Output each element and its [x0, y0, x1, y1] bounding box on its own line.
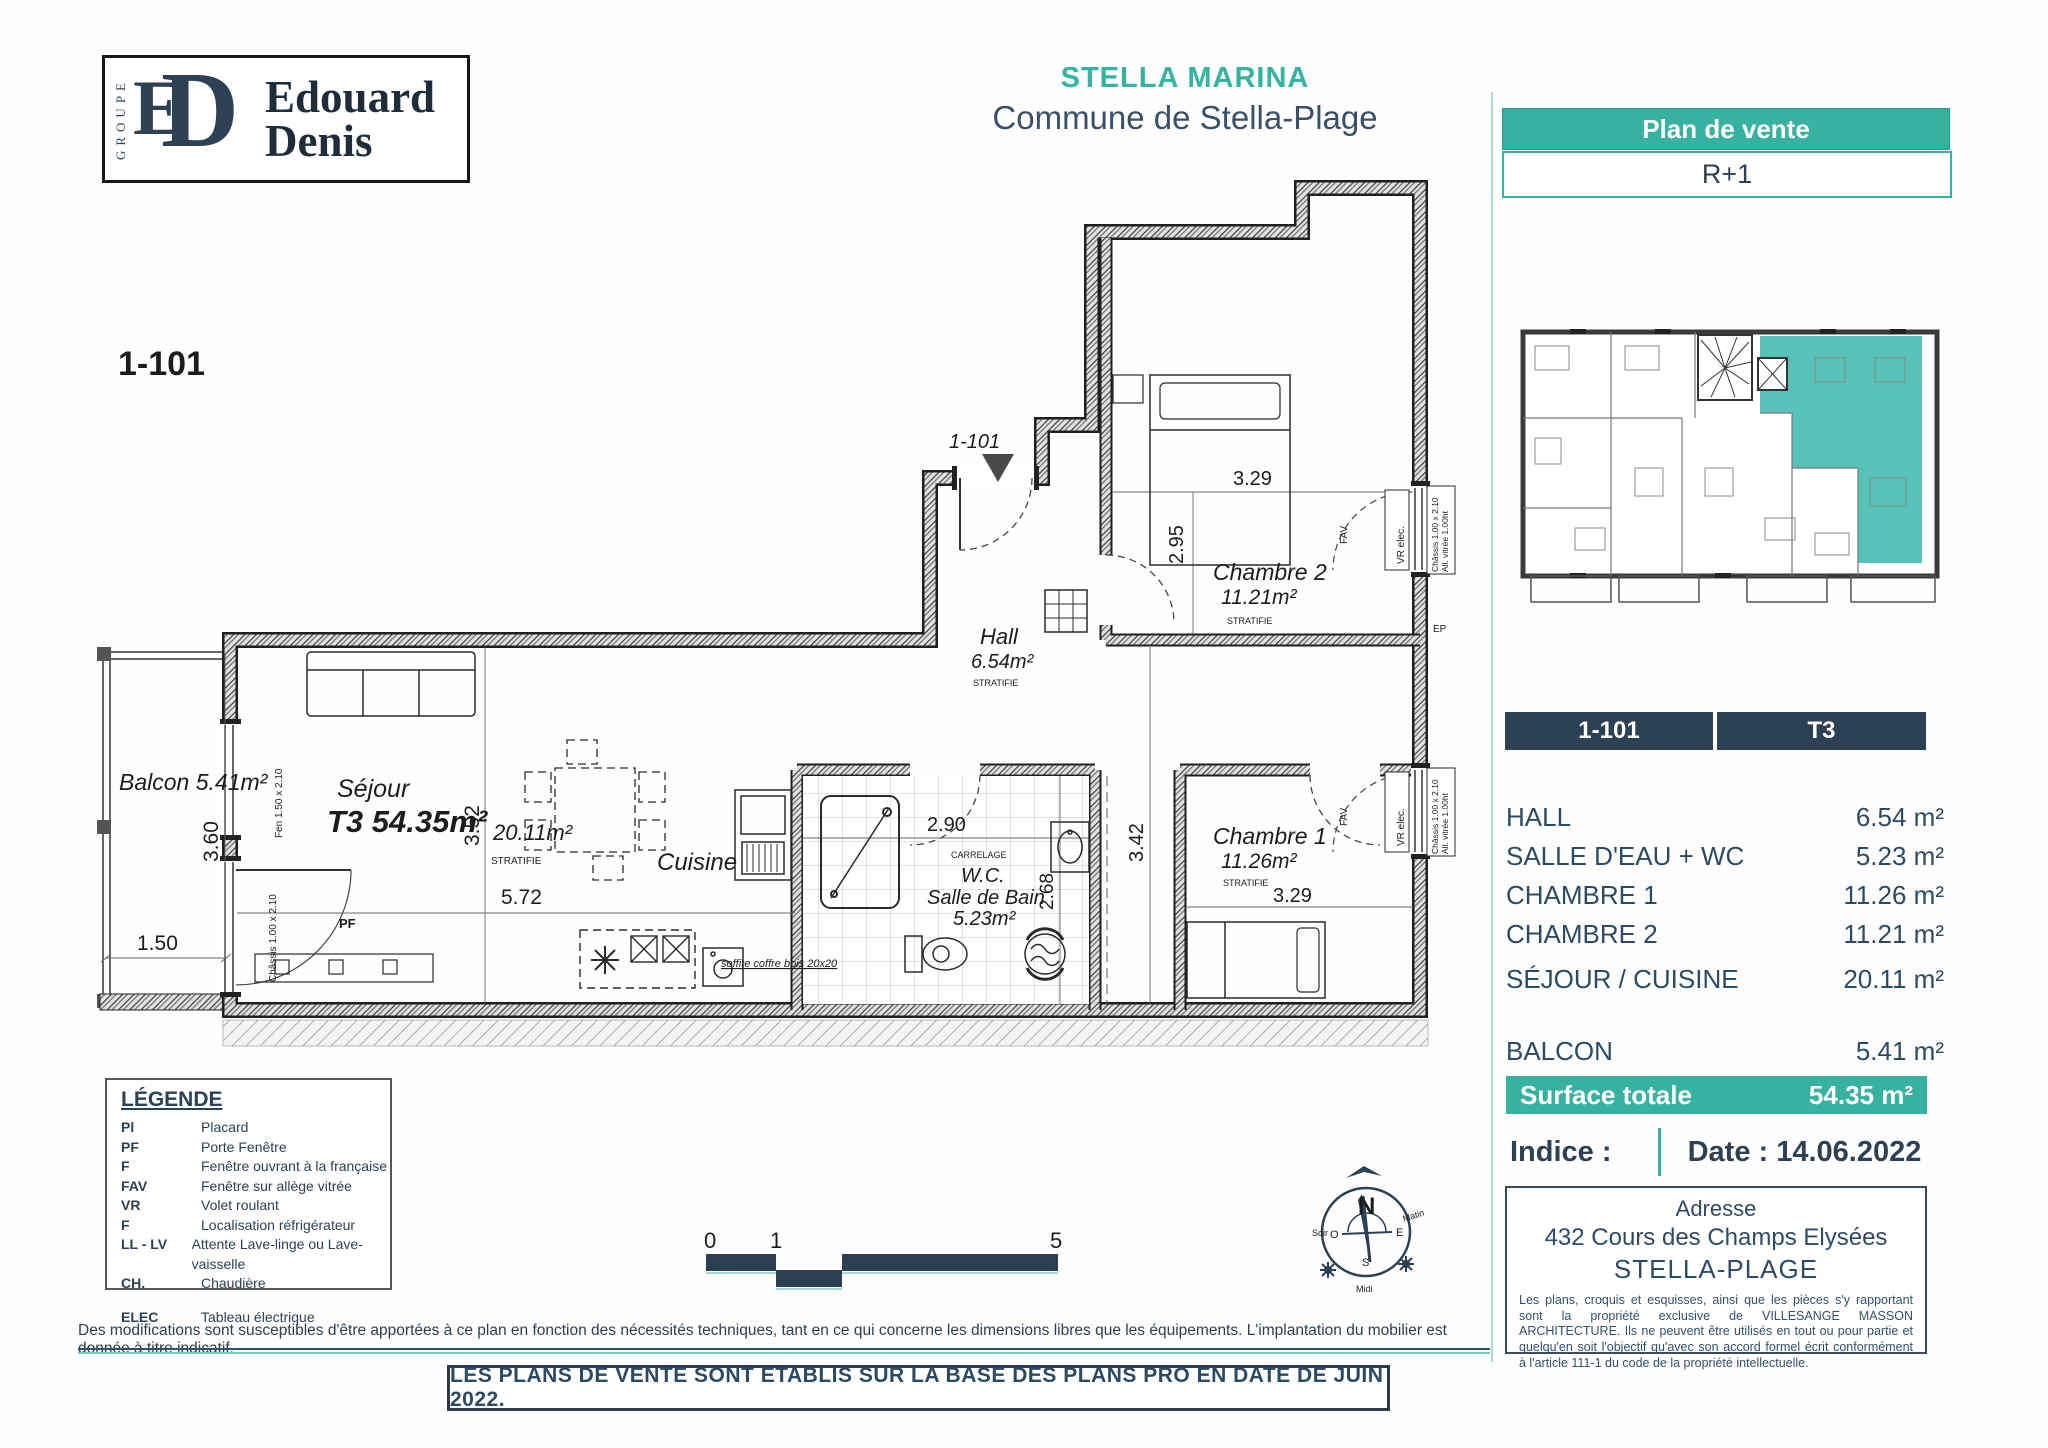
dim-572: 5.72 [501, 886, 542, 909]
address-line1: 432 Cours des Champs Elysées [1507, 1224, 1925, 1252]
fav-label: FAV [1339, 808, 1350, 826]
table-row: CHAMBRE 2 11.21 m² [1502, 915, 1948, 954]
room-label: CHAMBRE 1 [1502, 880, 1658, 911]
legend-label: Porte Fenêtre [201, 1138, 287, 1158]
legend-item: FLocalisation réfrigérateur [121, 1216, 390, 1236]
compass-midi: Midi [1356, 1284, 1373, 1294]
kitchen-column [735, 790, 791, 880]
floor-plan: 1-101 1-101 Balcon 5.41m² 3.60 1.50 Fen … [75, 170, 1495, 1070]
brand-name-line2: Denis [265, 119, 435, 163]
sdb-label: Salle de Bain [927, 887, 1045, 909]
chambre2-area-label: 11.21m² [1221, 586, 1297, 609]
room-label: CHAMBRE 2 [1502, 919, 1658, 950]
dining-table [525, 740, 665, 880]
dim-352: 3.52 [461, 805, 484, 846]
chassis-label: Châssis 1.00 x 2.10 [1430, 497, 1440, 572]
legend-title: LÉGENDE [121, 1088, 390, 1112]
surface-totale-bar: Surface totale 54.35 m² [1506, 1076, 1927, 1114]
legend-abbr: F [121, 1216, 201, 1236]
legend-abbr: F [121, 1157, 201, 1177]
allege-label: All. vitrée 1.00ht [1440, 510, 1450, 572]
room-area: 11.21 m² [1843, 919, 1948, 950]
legend-label: Localisation réfrigérateur [201, 1216, 355, 1236]
legend-label: Chaudière [201, 1274, 266, 1294]
dim-342: 3.42 [1126, 823, 1148, 862]
fen-label: Fen 1.50 x 2.10 [274, 768, 285, 838]
balcon-label: BALCON [1502, 1036, 1613, 1067]
sejour-area-label: 20.11m² [492, 820, 573, 845]
table-row: HALL 6.54 m² [1502, 798, 1948, 837]
table-row: SÉJOUR / CUISINE 20.11 m² [1502, 960, 1948, 999]
surface-totale-label: Surface totale [1520, 1080, 1692, 1111]
dim-268: 2.68 [1037, 873, 1058, 910]
unit-tag: 1-101 [118, 345, 205, 383]
legend-abbr: VR [121, 1196, 201, 1216]
legend-item: FFenêtre ouvrant à la française [121, 1157, 390, 1177]
project-title: STELLA MARINA Commune de Stella-Plage [985, 62, 1385, 137]
compass-n: N [1358, 1193, 1375, 1220]
chassis-left-label: Châssis 1.00 x 2.10 [268, 894, 279, 982]
monogram-d: D [161, 57, 239, 165]
unit-type-badge: T3 [1717, 712, 1926, 750]
legend-box: LÉGENDE PlPlacard PFPorte Fenêtre FFenêt… [105, 1078, 392, 1290]
sideboard [255, 954, 433, 982]
hall-label: Hall [980, 624, 1019, 649]
copyright-mention: Les plans, croquis et esquisses, ainsi q… [1507, 1285, 1925, 1371]
indice-label: Indice : [1502, 1136, 1658, 1169]
legend-label: Fenêtre sur allège vitrée [201, 1177, 352, 1197]
brand-monogram: E D [131, 61, 261, 177]
wc-label: W.C. [961, 865, 1005, 887]
allege-label: All. vitrée 1.00ht [1440, 792, 1450, 854]
floor-plan-svg: 1-101 1-101 Balcon 5.41m² 3.60 1.50 Fen … [75, 170, 1495, 1070]
unit-number-badge: 1-101 [1505, 712, 1713, 750]
address-line2: STELLA-PLAGE [1507, 1254, 1925, 1285]
sejour-label: Séjour [337, 775, 411, 803]
plan-de-vente-banner: Plan de vente [1502, 108, 1950, 150]
legend-item: FAVFenêtre sur allège vitrée [121, 1177, 390, 1197]
cuisine-label: Cuisine [657, 849, 737, 876]
legend-abbr: PF [121, 1138, 201, 1158]
ep-label: EP [1433, 624, 1447, 635]
plan-de-vente-sheet: { "brand": {"groupe":"GROUPE","monogram_… [0, 0, 2048, 1448]
room-area: 11.26 m² [1843, 880, 1948, 911]
room-label: SALLE D'EAU + WC [1502, 841, 1744, 872]
carrelage-label: CARRELAGE [951, 850, 1007, 860]
elec-cabinet-icon [1045, 590, 1087, 632]
compass-rose: N O E S Soir Matin Midi [1312, 1160, 1424, 1310]
hotplate-icon [591, 946, 619, 974]
chambre1-area-label: 11.26m² [1221, 850, 1297, 873]
address-title: Adresse [1507, 1196, 1925, 1222]
stratifie-label: STRATIFIE [1227, 616, 1272, 626]
vr-label: VR elec. [1396, 526, 1407, 564]
legend-abbr: CH. [121, 1274, 201, 1294]
plan-labels: 1-101 1-101 Balcon 5.41m² 3.60 1.50 Fen … [118, 345, 1450, 982]
balcon-area: 5.41 m² [1856, 1036, 1948, 1067]
indice-date-row: Indice : Date : 14.06.2022 [1502, 1128, 1948, 1176]
footer-rule-teal [78, 1352, 1490, 1354]
entrance-label: 1-101 [949, 431, 1000, 453]
dim-360: 3.60 [200, 821, 223, 862]
soffite-label: soffite coffre bois 20x20 [721, 958, 838, 970]
compass-e: E [1396, 1227, 1403, 1239]
legend-label: Placard [201, 1118, 248, 1138]
legend-label: Volet roulant [201, 1196, 279, 1216]
hall-area-label: 6.54m² [971, 651, 1035, 673]
legend-item: CH.Chaudière [121, 1274, 390, 1294]
brand-logo: GROUPE E D Edouard Denis [102, 55, 470, 183]
level-badge: R+1 [1502, 151, 1952, 198]
legend-item: PlPlacard [121, 1118, 390, 1138]
footer-notice-box: LES PLANS DE VENTE SONT ETABLIS SUR LA B… [447, 1365, 1390, 1411]
compass-s: S [1362, 1257, 1369, 1269]
chassis-label: Châssis 1.00 x 2.10 [1430, 779, 1440, 854]
dim-329b: 3.29 [1273, 885, 1312, 907]
room-area: 6.54 m² [1856, 802, 1948, 833]
stratifie-label: STRATIFIE [973, 678, 1018, 688]
compass-o: O [1330, 1229, 1339, 1241]
balcon-row: BALCON 5.41 m² [1502, 1032, 1948, 1071]
project-name: STELLA MARINA [985, 62, 1385, 95]
brand-name-line1: Edouard [265, 75, 435, 119]
footer-rule-navy [78, 1348, 1490, 1350]
scale-1: 1 [770, 1232, 782, 1253]
address-box: Adresse 432 Cours des Champs Elysées STE… [1505, 1186, 1927, 1354]
kitchen-counter [580, 930, 695, 988]
chambre1-label: Chambre 1 [1213, 823, 1327, 849]
key-plan-thumbnail [1515, 318, 1945, 616]
chambre2-label: Chambre 2 [1213, 559, 1327, 585]
key-plan-svg [1515, 318, 1945, 616]
project-commune: Commune de Stella-Plage [985, 99, 1385, 137]
pf-label: PF [339, 916, 356, 931]
room-areas-table: HALL 6.54 m² SALLE D'EAU + WC 5.23 m² CH… [1502, 798, 1948, 999]
legend-abbr: LL - LV [121, 1235, 192, 1274]
room-area: 5.23 m² [1856, 841, 1948, 872]
brand-name: Edouard Denis [265, 75, 435, 163]
room-area: 20.11 m² [1843, 964, 1948, 995]
legend-label: Fenêtre ouvrant à la française [201, 1157, 387, 1177]
compass-soir: Soir [1312, 1228, 1328, 1238]
bed-chambre1 [1187, 922, 1325, 998]
sofa [307, 652, 475, 716]
stratifie-label: STRATIFIE [1223, 878, 1268, 888]
dim-329a: 3.29 [1233, 468, 1272, 490]
legend-abbr: FAV [121, 1177, 201, 1197]
table-row: SALLE D'EAU + WC 5.23 m² [1502, 837, 1948, 876]
table-row: CHAMBRE 1 11.26 m² [1502, 876, 1948, 915]
stratifie-label: STRATIFIE [491, 856, 542, 867]
legend-item: LL - LVAttente Lave-linge ou Lave-vaisse… [121, 1235, 390, 1274]
scale-bar: 0 1 5 [700, 1232, 1072, 1302]
dim-295: 2.95 [1166, 525, 1188, 564]
legend-label: Attente Lave-linge ou Lave-vaisselle [192, 1235, 390, 1274]
lower-wall-band [223, 1020, 1428, 1046]
fav-label: FAV [1339, 526, 1350, 544]
surface-totale-value: 54.35 m² [1809, 1080, 1913, 1111]
legend-item: VRVolet roulant [121, 1196, 390, 1216]
room-label: HALL [1502, 802, 1571, 833]
dim-150: 1.50 [137, 932, 178, 955]
legend-abbr: Pl [121, 1118, 201, 1138]
vr-label: VR elec. [1396, 808, 1407, 846]
brand-groupe-label: GROUPE [113, 78, 129, 160]
sdb-area-label: 5.23m² [953, 908, 1017, 930]
date-value: Date : 14.06.2022 [1661, 1136, 1948, 1169]
room-label: SÉJOUR / CUISINE [1502, 964, 1739, 995]
scale-0: 0 [704, 1232, 716, 1253]
balcon-label: Balcon 5.41m² [119, 769, 269, 795]
scale-5: 5 [1050, 1232, 1062, 1253]
north-chevron-icon [1346, 1166, 1382, 1178]
balconies [1531, 576, 1935, 602]
legend-item: PFPorte Fenêtre [121, 1138, 390, 1158]
dim-290: 2.90 [927, 814, 966, 836]
